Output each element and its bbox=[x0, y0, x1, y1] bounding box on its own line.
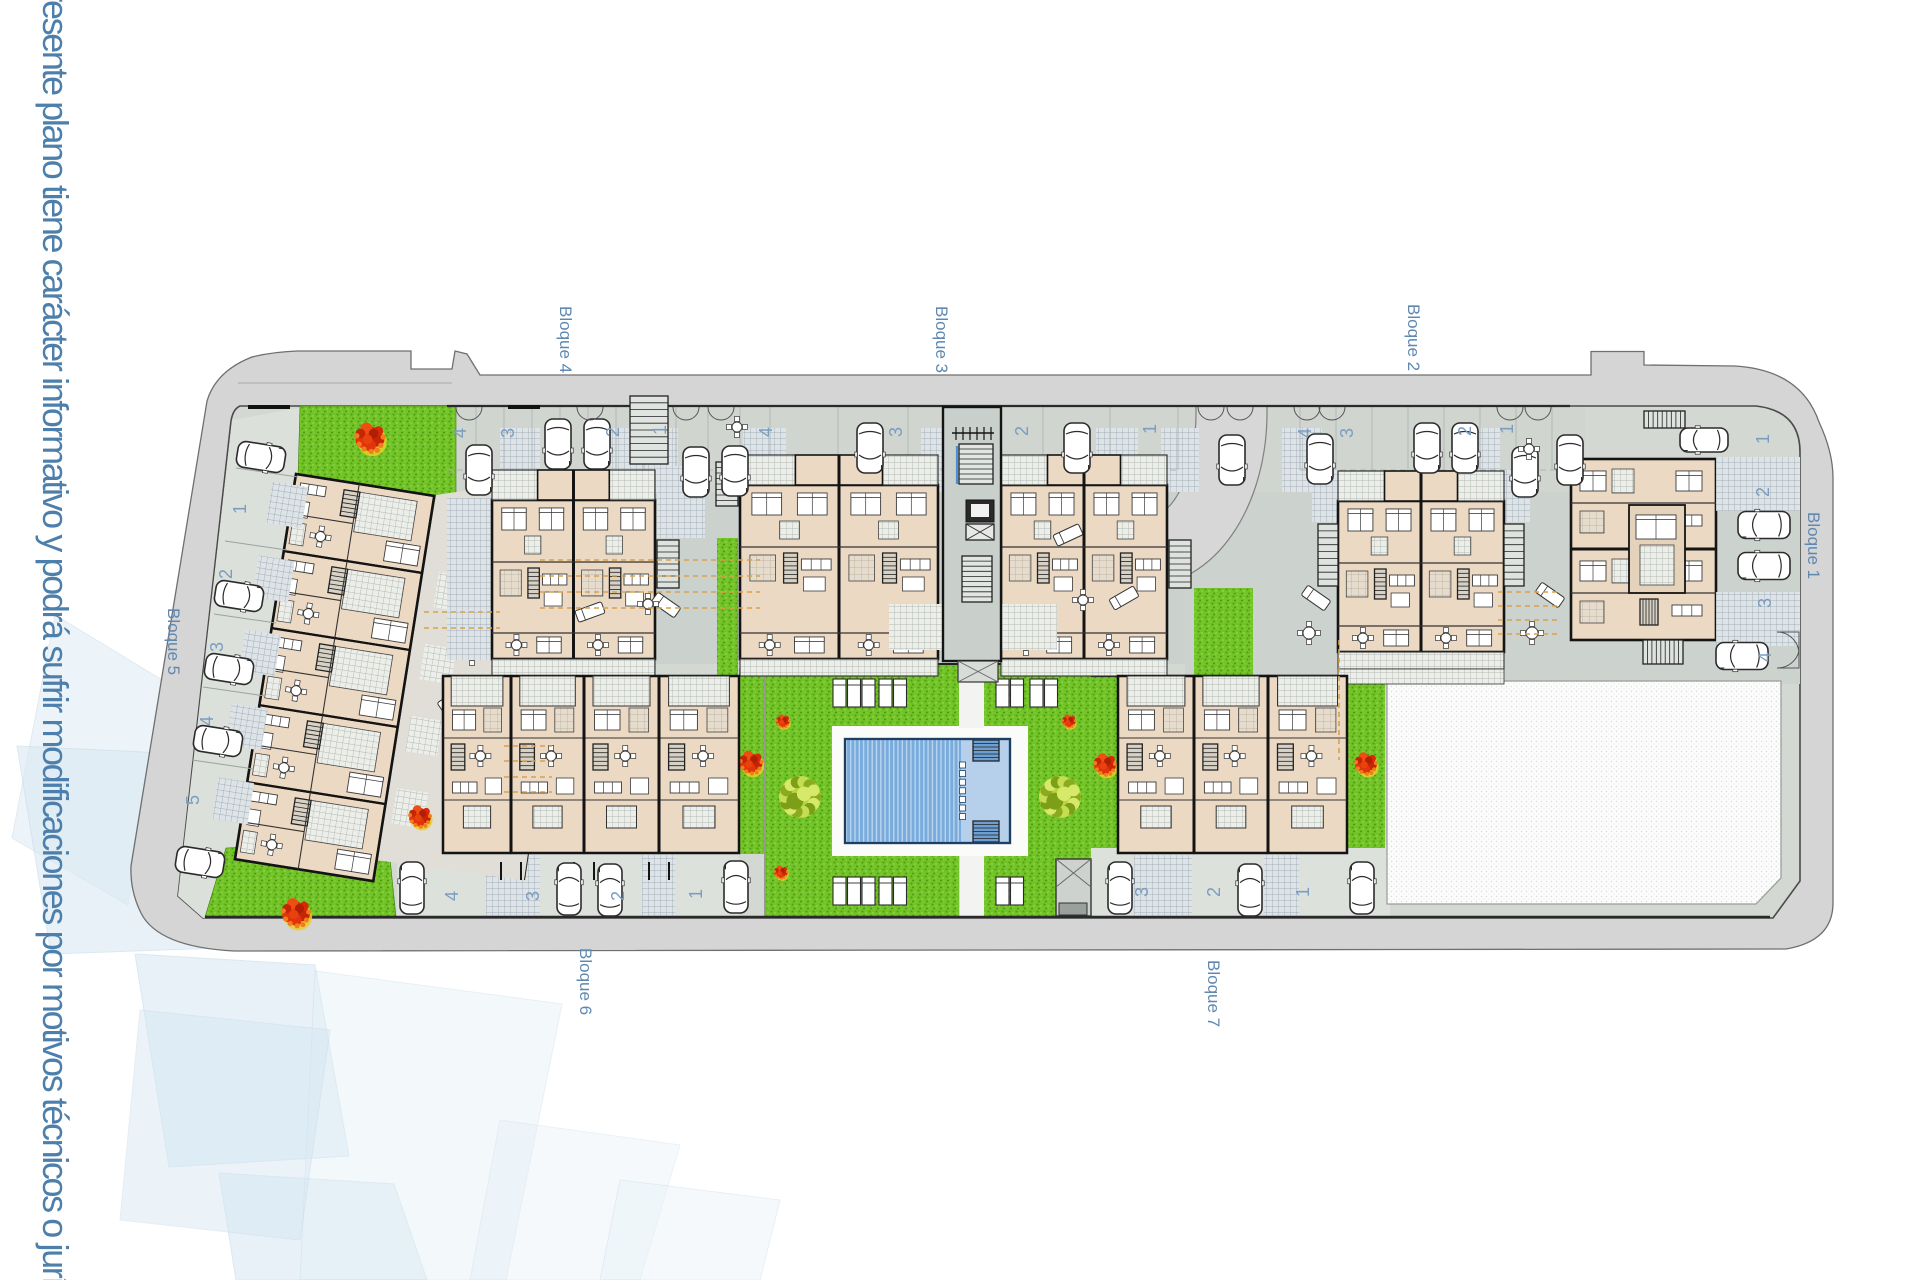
svg-text:1: 1 bbox=[686, 889, 706, 899]
svg-text:1: 1 bbox=[230, 504, 250, 514]
svg-text:2: 2 bbox=[1012, 426, 1032, 436]
svg-text:5: 5 bbox=[183, 795, 203, 805]
svg-text:4: 4 bbox=[197, 716, 217, 726]
svg-text:4: 4 bbox=[1755, 652, 1775, 662]
svg-text:4: 4 bbox=[450, 428, 470, 438]
svg-text:2: 2 bbox=[608, 891, 628, 901]
svg-text:Bloque 5: Bloque 5 bbox=[164, 608, 183, 675]
svg-text:Bloque 7: Bloque 7 bbox=[1204, 960, 1223, 1027]
svg-text:1: 1 bbox=[1293, 887, 1313, 897]
svg-text:3: 3 bbox=[886, 427, 906, 437]
svg-text:Bloque 1: Bloque 1 bbox=[1804, 512, 1823, 579]
svg-text:El presente plano tiene caráct: El presente plano tiene carácter informa… bbox=[35, 0, 76, 1280]
svg-text:4: 4 bbox=[1295, 428, 1315, 438]
svg-text:4: 4 bbox=[442, 891, 462, 901]
svg-text:2: 2 bbox=[603, 427, 623, 437]
svg-text:4: 4 bbox=[756, 427, 776, 437]
svg-text:Bloque 2: Bloque 2 bbox=[1404, 304, 1423, 371]
svg-text:2: 2 bbox=[1753, 487, 1773, 497]
svg-text:2: 2 bbox=[216, 569, 236, 579]
svg-text:3: 3 bbox=[207, 642, 227, 652]
svg-text:3: 3 bbox=[1337, 428, 1357, 438]
svg-text:1: 1 bbox=[1753, 434, 1773, 444]
svg-text:2: 2 bbox=[1455, 426, 1475, 436]
svg-text:1: 1 bbox=[1140, 424, 1160, 434]
svg-text:1: 1 bbox=[650, 425, 670, 435]
svg-text:Bloque 4: Bloque 4 bbox=[556, 306, 575, 373]
svg-text:3: 3 bbox=[1755, 598, 1775, 608]
svg-text:2: 2 bbox=[1204, 887, 1224, 897]
svg-text:3: 3 bbox=[1132, 887, 1152, 897]
svg-text:3: 3 bbox=[523, 891, 543, 901]
svg-text:3: 3 bbox=[498, 428, 518, 438]
svg-text:Bloque 3: Bloque 3 bbox=[932, 306, 951, 373]
svg-text:1: 1 bbox=[1497, 424, 1517, 434]
svg-text:Bloque 6: Bloque 6 bbox=[576, 948, 595, 1015]
